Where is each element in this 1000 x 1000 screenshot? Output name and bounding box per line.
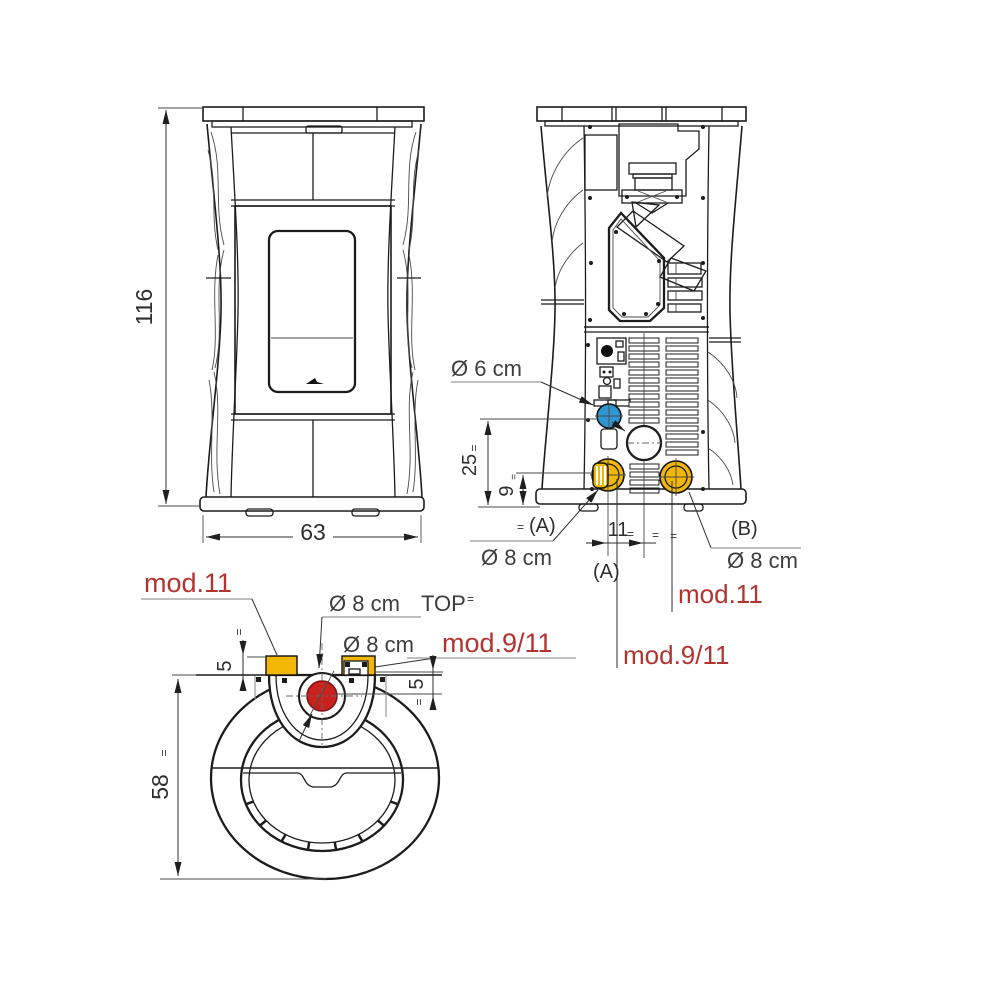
stove-dimension-drawing: 116 63 [0, 0, 1000, 1000]
door-glass [269, 231, 355, 392]
eq-mark: = [509, 474, 520, 480]
label-mod11-rear: mod.11 [678, 579, 763, 609]
eq-mark: = [652, 528, 659, 542]
eq-mark: = [627, 527, 634, 541]
label-top-tag: TOP [421, 591, 466, 616]
label-outlet-a: (A) [529, 515, 556, 537]
cap-mod11 [266, 656, 297, 675]
dim-11: 11 [608, 519, 629, 541]
flue-pipe [635, 178, 672, 190]
rear-view: Ø 6 cm 25 = 9 = 11 = = = = (A) Ø 8 cm (A… [451, 107, 801, 670]
dim-width-63: 63 [300, 519, 326, 545]
label-top-flue-diameter: Ø 8 cm [329, 591, 400, 616]
label-mod911-top: mod.9/11 [442, 628, 553, 658]
eq-mark: = [467, 444, 481, 451]
label-outlet-a2: (A) [593, 561, 620, 583]
front-view: 116 63 [131, 107, 424, 545]
eq-mark: = [517, 520, 524, 534]
brand-logo-mark [306, 378, 324, 384]
dim-height-116: 116 [131, 289, 157, 326]
front-width-dimension: 63 [203, 514, 421, 545]
top-view: mod.11 Ø 8 cm TOP = Ø 8 cm mod.9/11 5 = … [141, 568, 576, 879]
label-rear-outlet-diameter: Ø 8 cm [343, 632, 414, 657]
eq-mark: = [670, 529, 677, 543]
eq-mark: = [157, 749, 171, 756]
dim-depth-58: 58 [147, 774, 173, 800]
label-mod11-top: mod.11 [144, 568, 232, 598]
eq-mark: = [412, 698, 426, 705]
dim-25: 25 [459, 454, 481, 476]
eq-mark: = [232, 628, 246, 635]
flue-pipe-flange [629, 163, 676, 174]
rear-view-linework [536, 107, 746, 558]
diagram-svg: 116 63 [0, 0, 1000, 1000]
label-outlet-b: (B) [731, 518, 758, 540]
power-connection-panel [594, 338, 630, 406]
eq-mark: = [467, 592, 474, 606]
top-view-linework [196, 643, 442, 879]
front-view-linework [200, 107, 424, 516]
label-mod911-rear: mod.9/11 [623, 640, 729, 670]
dim-5-right: 5 [406, 678, 428, 689]
label-outlet-b-diameter: Ø 8 cm [727, 548, 798, 573]
rear-labels: Ø 6 cm 25 = 9 = 11 = = = = (A) Ø 8 cm (A… [451, 356, 798, 670]
dim-5-left: 5 [214, 660, 236, 671]
label-outlet-a-diameter: Ø 8 cm [481, 545, 552, 570]
dim-9: 9 [496, 485, 518, 496]
label-flue-diameter: Ø 6 cm [451, 356, 522, 381]
front-height-dimension: 116 [131, 108, 204, 506]
stove-base [200, 497, 424, 511]
